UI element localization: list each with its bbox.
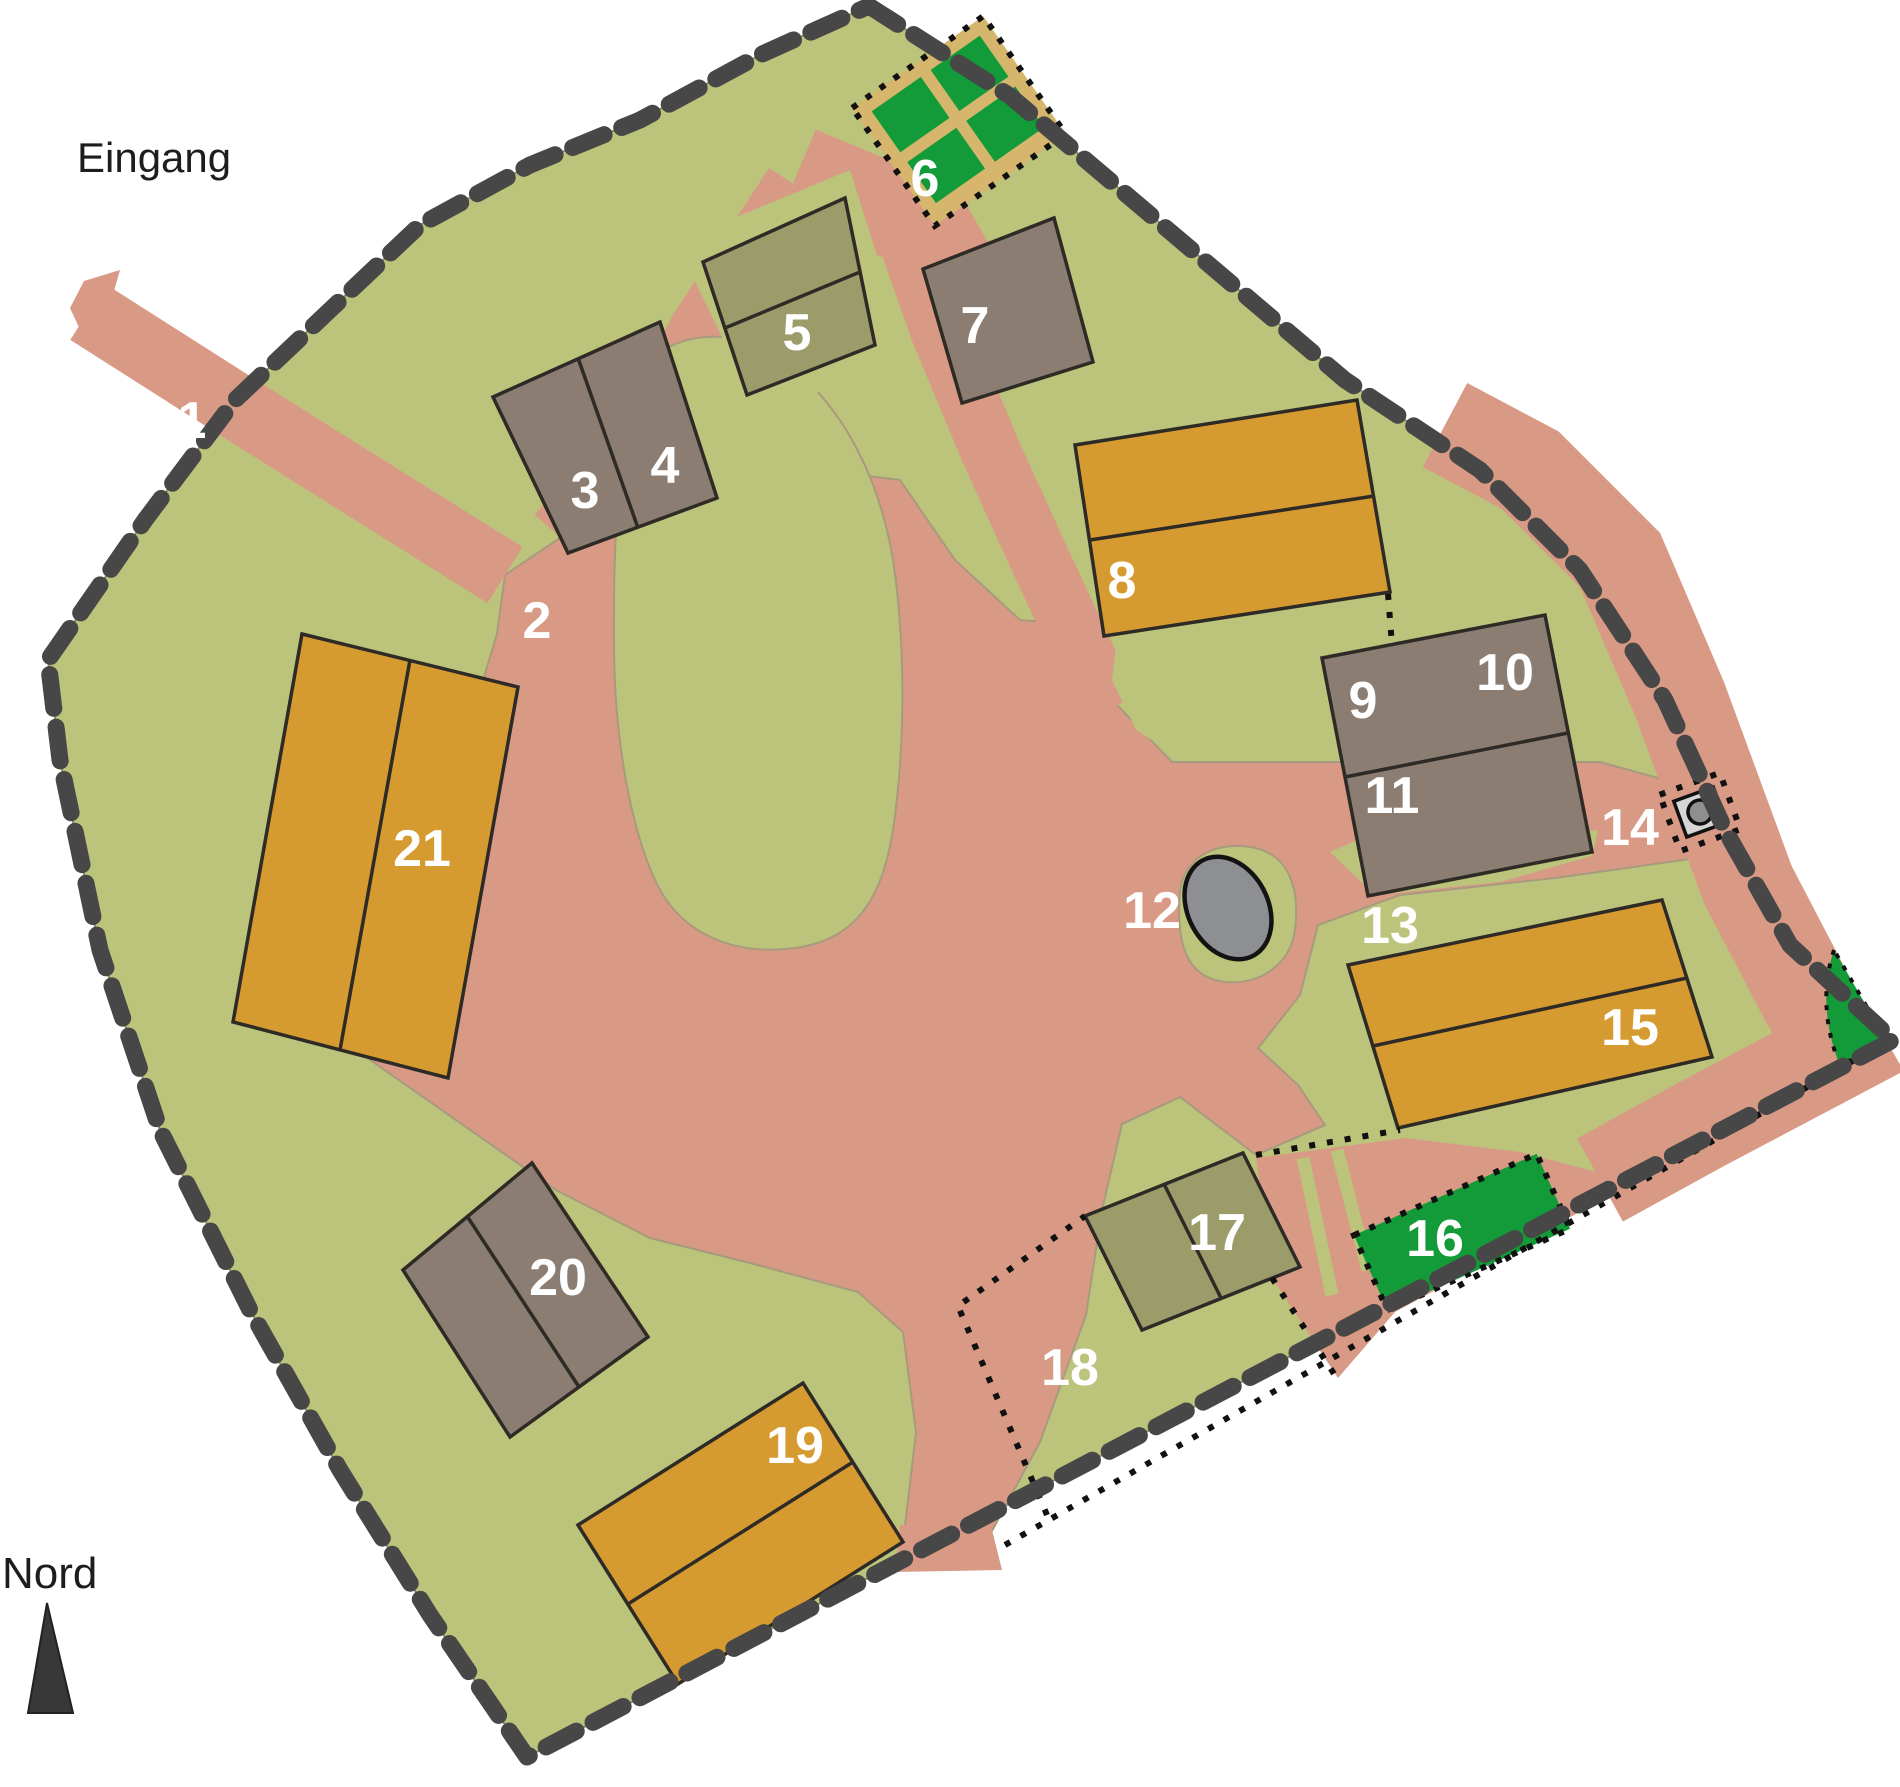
site-map: 123456789101112131415161718192021 Eingan… (0, 0, 1900, 1787)
map-label-10: 10 (1476, 644, 1534, 702)
map-label-18: 18 (1041, 1339, 1099, 1397)
map-label-17: 17 (1188, 1204, 1246, 1262)
map-label-14: 14 (1601, 799, 1659, 857)
map-label-12: 12 (1123, 882, 1181, 940)
map-label-21: 21 (393, 820, 451, 878)
map-label-5: 5 (783, 304, 812, 362)
map-label-8: 8 (1108, 552, 1137, 610)
entrance-label: Eingang (77, 134, 231, 181)
map-label-1: 1 (178, 392, 207, 450)
map-label-7: 7 (961, 297, 990, 355)
map-label-6: 6 (911, 150, 940, 208)
map-label-4: 4 (651, 437, 680, 495)
north-arrow-icon (28, 1603, 73, 1713)
map-label-3: 3 (571, 462, 600, 520)
map-label-2: 2 (523, 592, 552, 650)
map-label-13: 13 (1361, 897, 1419, 955)
map-label-20: 20 (529, 1249, 587, 1307)
map-label-9: 9 (1349, 672, 1378, 730)
map-label-15: 15 (1601, 999, 1659, 1057)
map-label-16: 16 (1406, 1210, 1464, 1268)
map-label-11: 11 (1365, 767, 1420, 825)
north-label: Nord (2, 1549, 97, 1598)
site-map-page: 123456789101112131415161718192021 Eingan… (0, 0, 1900, 1787)
map-label-19: 19 (766, 1417, 824, 1475)
